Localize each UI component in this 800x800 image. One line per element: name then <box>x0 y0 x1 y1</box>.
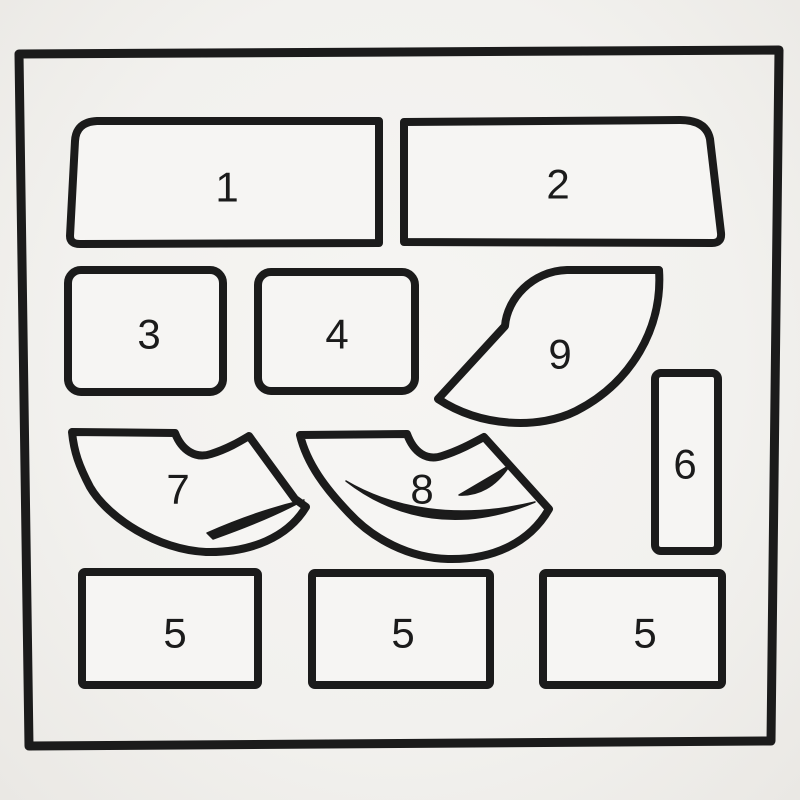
piece-1: 1 <box>70 121 379 244</box>
piece-9-label: 9 <box>548 331 571 378</box>
piece-8-label: 8 <box>410 466 433 513</box>
piece-9: 9 <box>438 270 659 423</box>
piece-4: 4 <box>258 272 415 391</box>
piece-3: 3 <box>68 270 223 392</box>
piece-5c-label: 5 <box>633 610 656 657</box>
piece-5c: 5 <box>543 573 722 685</box>
piece-7: 7 <box>72 432 306 552</box>
piece-5b: 5 <box>312 573 490 685</box>
scanned-diagram-page: 1 2 3 4 9 6 7 <box>0 0 800 800</box>
piece-8: 8 <box>300 434 549 559</box>
piece-5a: 5 <box>82 572 258 685</box>
piece-3-label: 3 <box>137 311 160 358</box>
piece-5b-label: 5 <box>391 610 414 657</box>
piece-7-label: 7 <box>166 466 189 513</box>
piece-1-label: 1 <box>215 164 238 211</box>
pattern-layout-diagram: 1 2 3 4 9 6 7 <box>0 0 800 800</box>
piece-2: 2 <box>404 120 721 243</box>
piece-6-label: 6 <box>673 441 696 488</box>
piece-4-label: 4 <box>325 311 348 358</box>
piece-6: 6 <box>655 373 718 551</box>
piece-5a-label: 5 <box>163 610 186 657</box>
piece-2-label: 2 <box>546 161 569 208</box>
